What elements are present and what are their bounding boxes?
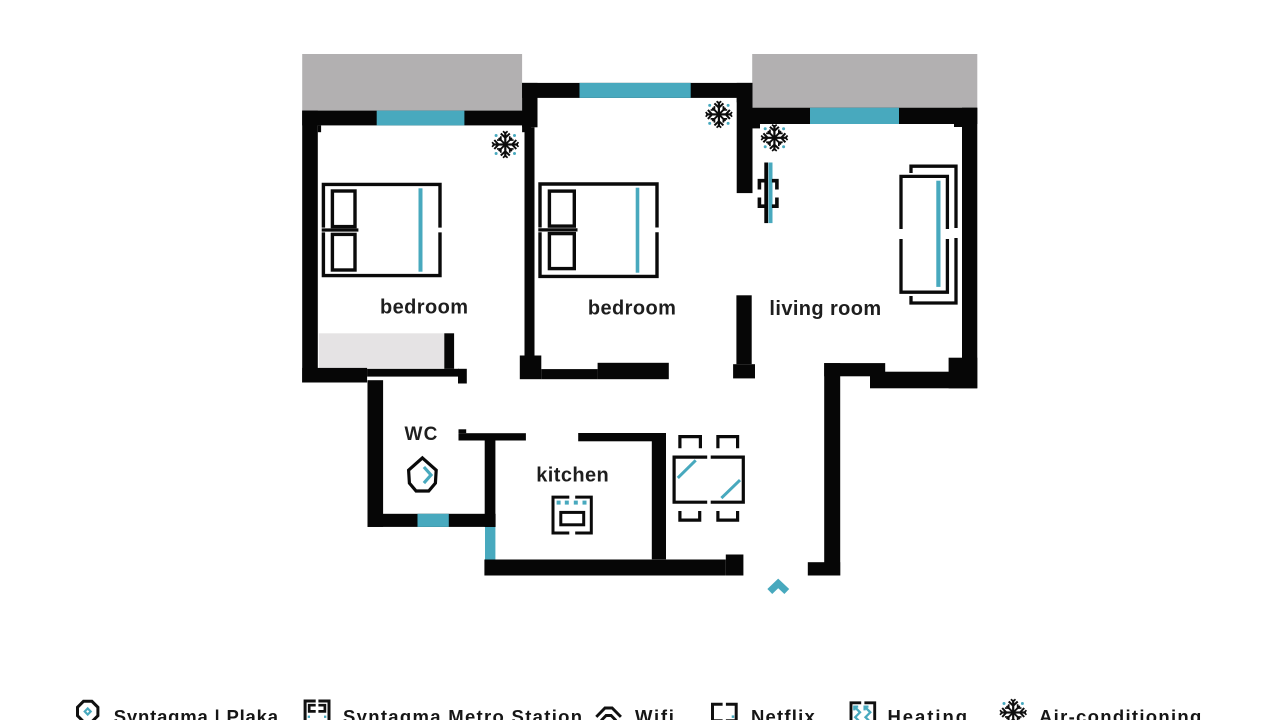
svg-text:bedroom: bedroom (380, 297, 468, 319)
svg-text:living room: living room (769, 298, 881, 320)
svg-text:Syntagma | Plaka: Syntagma | Plaka (114, 706, 279, 720)
svg-text:WC: WC (404, 424, 438, 445)
svg-text:Netflix: Netflix (751, 706, 816, 720)
svg-text:Air-conditioning: Air-conditioning (1039, 706, 1203, 720)
svg-text:Syntagma Metro Station: Syntagma Metro Station (343, 706, 583, 720)
svg-text:kitchen: kitchen (536, 465, 609, 487)
svg-text:Wifi: Wifi (635, 706, 676, 720)
svg-text:bedroom: bedroom (588, 298, 676, 320)
svg-text:Heating: Heating (888, 706, 970, 720)
